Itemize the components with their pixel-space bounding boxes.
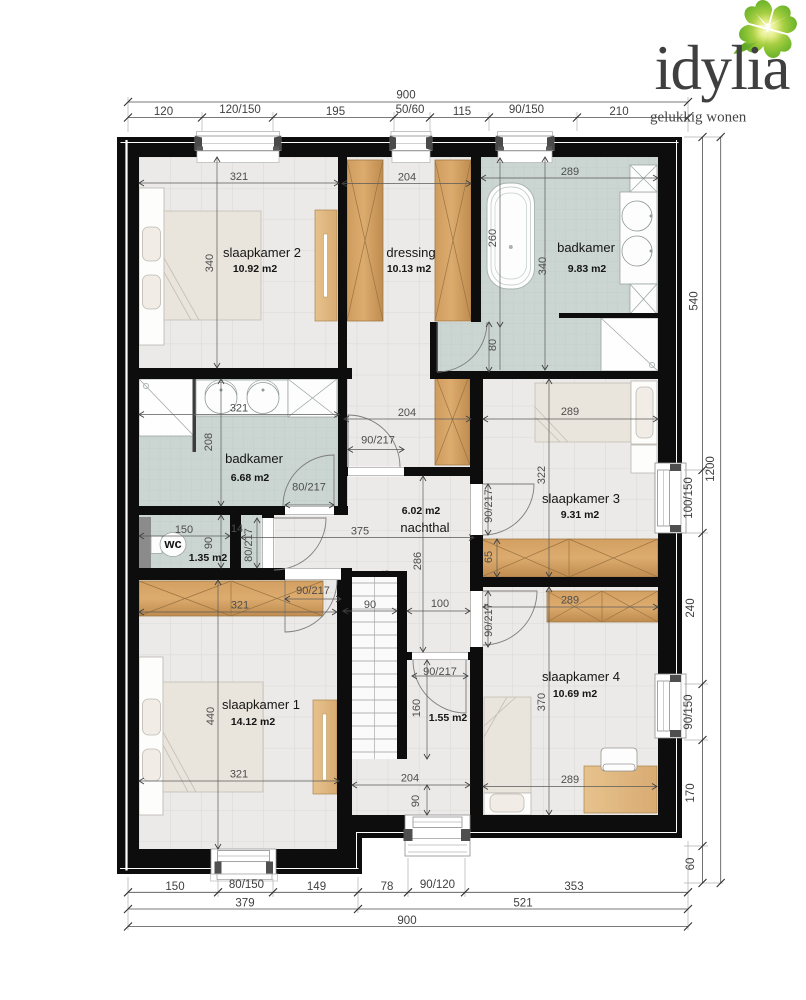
svg-text:340: 340 bbox=[537, 257, 549, 275]
svg-text:14: 14 bbox=[231, 523, 243, 535]
svg-text:nachthal: nachthal bbox=[400, 520, 449, 535]
svg-text:dressing: dressing bbox=[386, 245, 435, 260]
svg-text:14.12 m2: 14.12 m2 bbox=[231, 716, 276, 728]
svg-text:353: 353 bbox=[564, 881, 583, 893]
svg-text:289: 289 bbox=[561, 406, 579, 418]
svg-text:90/217: 90/217 bbox=[423, 666, 457, 678]
svg-text:slaapkamer 2: slaapkamer 2 bbox=[223, 245, 301, 260]
svg-text:9.31 m2: 9.31 m2 bbox=[561, 509, 600, 521]
svg-text:204: 204 bbox=[398, 172, 416, 184]
svg-text:321: 321 bbox=[230, 403, 248, 415]
svg-text:370: 370 bbox=[536, 693, 548, 711]
svg-text:78: 78 bbox=[381, 881, 394, 893]
svg-text:379: 379 bbox=[235, 898, 254, 910]
svg-text:120: 120 bbox=[154, 106, 173, 118]
svg-text:540: 540 bbox=[689, 291, 701, 310]
svg-text:289: 289 bbox=[561, 166, 579, 178]
svg-text:900: 900 bbox=[397, 915, 416, 927]
svg-text:289: 289 bbox=[561, 774, 579, 786]
svg-text:wc: wc bbox=[163, 536, 181, 551]
svg-text:208: 208 bbox=[203, 433, 215, 451]
svg-text:90/217: 90/217 bbox=[361, 435, 395, 447]
svg-text:90/150: 90/150 bbox=[683, 694, 695, 729]
svg-text:gelukkig wonen: gelukkig wonen bbox=[650, 110, 747, 126]
svg-text:60: 60 bbox=[685, 858, 697, 871]
svg-text:80/217: 80/217 bbox=[292, 482, 326, 494]
svg-text:322: 322 bbox=[536, 466, 548, 484]
svg-text:900: 900 bbox=[396, 90, 415, 102]
svg-text:440: 440 bbox=[205, 707, 217, 725]
svg-text:195: 195 bbox=[326, 106, 345, 118]
svg-text:115: 115 bbox=[453, 106, 471, 118]
svg-text:120/150: 120/150 bbox=[219, 104, 261, 116]
svg-text:slaapkamer 3: slaapkamer 3 bbox=[542, 491, 620, 506]
svg-text:badkamer: badkamer bbox=[225, 451, 283, 466]
svg-text:100/150: 100/150 bbox=[683, 477, 695, 519]
svg-text:6.68 m2: 6.68 m2 bbox=[231, 472, 270, 484]
svg-text:160: 160 bbox=[411, 699, 423, 717]
svg-text:204: 204 bbox=[398, 407, 416, 419]
svg-text:321: 321 bbox=[230, 769, 248, 781]
svg-text:521: 521 bbox=[513, 898, 532, 910]
svg-text:150: 150 bbox=[165, 881, 184, 893]
svg-text:slaapkamer 4: slaapkamer 4 bbox=[542, 669, 620, 684]
svg-text:321: 321 bbox=[230, 171, 248, 183]
svg-text:210: 210 bbox=[609, 106, 628, 118]
svg-text:idylia: idylia bbox=[655, 33, 791, 103]
svg-text:340: 340 bbox=[204, 254, 216, 272]
svg-text:90: 90 bbox=[364, 599, 376, 611]
svg-text:10.69 m2: 10.69 m2 bbox=[553, 688, 598, 700]
svg-text:321: 321 bbox=[231, 600, 249, 612]
svg-text:90/217: 90/217 bbox=[483, 603, 495, 637]
svg-text:204: 204 bbox=[401, 773, 419, 785]
svg-text:80/150: 80/150 bbox=[229, 879, 264, 891]
svg-text:375: 375 bbox=[351, 526, 369, 538]
svg-text:90/150: 90/150 bbox=[509, 104, 544, 116]
svg-text:90/217: 90/217 bbox=[483, 489, 495, 523]
svg-text:1.35 m2: 1.35 m2 bbox=[189, 552, 228, 564]
svg-text:1200: 1200 bbox=[705, 456, 717, 482]
svg-text:286: 286 bbox=[412, 552, 424, 570]
svg-text:90/217: 90/217 bbox=[296, 585, 330, 597]
svg-text:10.92 m2: 10.92 m2 bbox=[233, 263, 278, 275]
svg-text:80: 80 bbox=[487, 339, 499, 351]
svg-text:100: 100 bbox=[431, 598, 449, 610]
svg-text:170: 170 bbox=[685, 783, 697, 802]
svg-text:289: 289 bbox=[561, 595, 579, 607]
svg-text:149: 149 bbox=[307, 881, 326, 893]
svg-text:50/60: 50/60 bbox=[396, 104, 425, 116]
svg-text:90: 90 bbox=[410, 795, 422, 807]
svg-text:1.55 m2: 1.55 m2 bbox=[429, 712, 468, 724]
svg-text:240: 240 bbox=[685, 598, 697, 617]
svg-text:65: 65 bbox=[483, 551, 495, 563]
svg-text:9.83 m2: 9.83 m2 bbox=[568, 263, 607, 275]
svg-text:90/120: 90/120 bbox=[420, 879, 455, 891]
svg-text:slaapkamer 1: slaapkamer 1 bbox=[222, 697, 300, 712]
svg-text:90: 90 bbox=[203, 537, 215, 549]
svg-text:150: 150 bbox=[175, 524, 193, 536]
svg-text:80/217: 80/217 bbox=[243, 528, 255, 562]
svg-text:10.13 m2: 10.13 m2 bbox=[387, 263, 432, 275]
svg-text:6.02 m2: 6.02 m2 bbox=[402, 505, 441, 517]
svg-text:260: 260 bbox=[487, 229, 499, 247]
svg-text:badkamer: badkamer bbox=[557, 240, 615, 255]
